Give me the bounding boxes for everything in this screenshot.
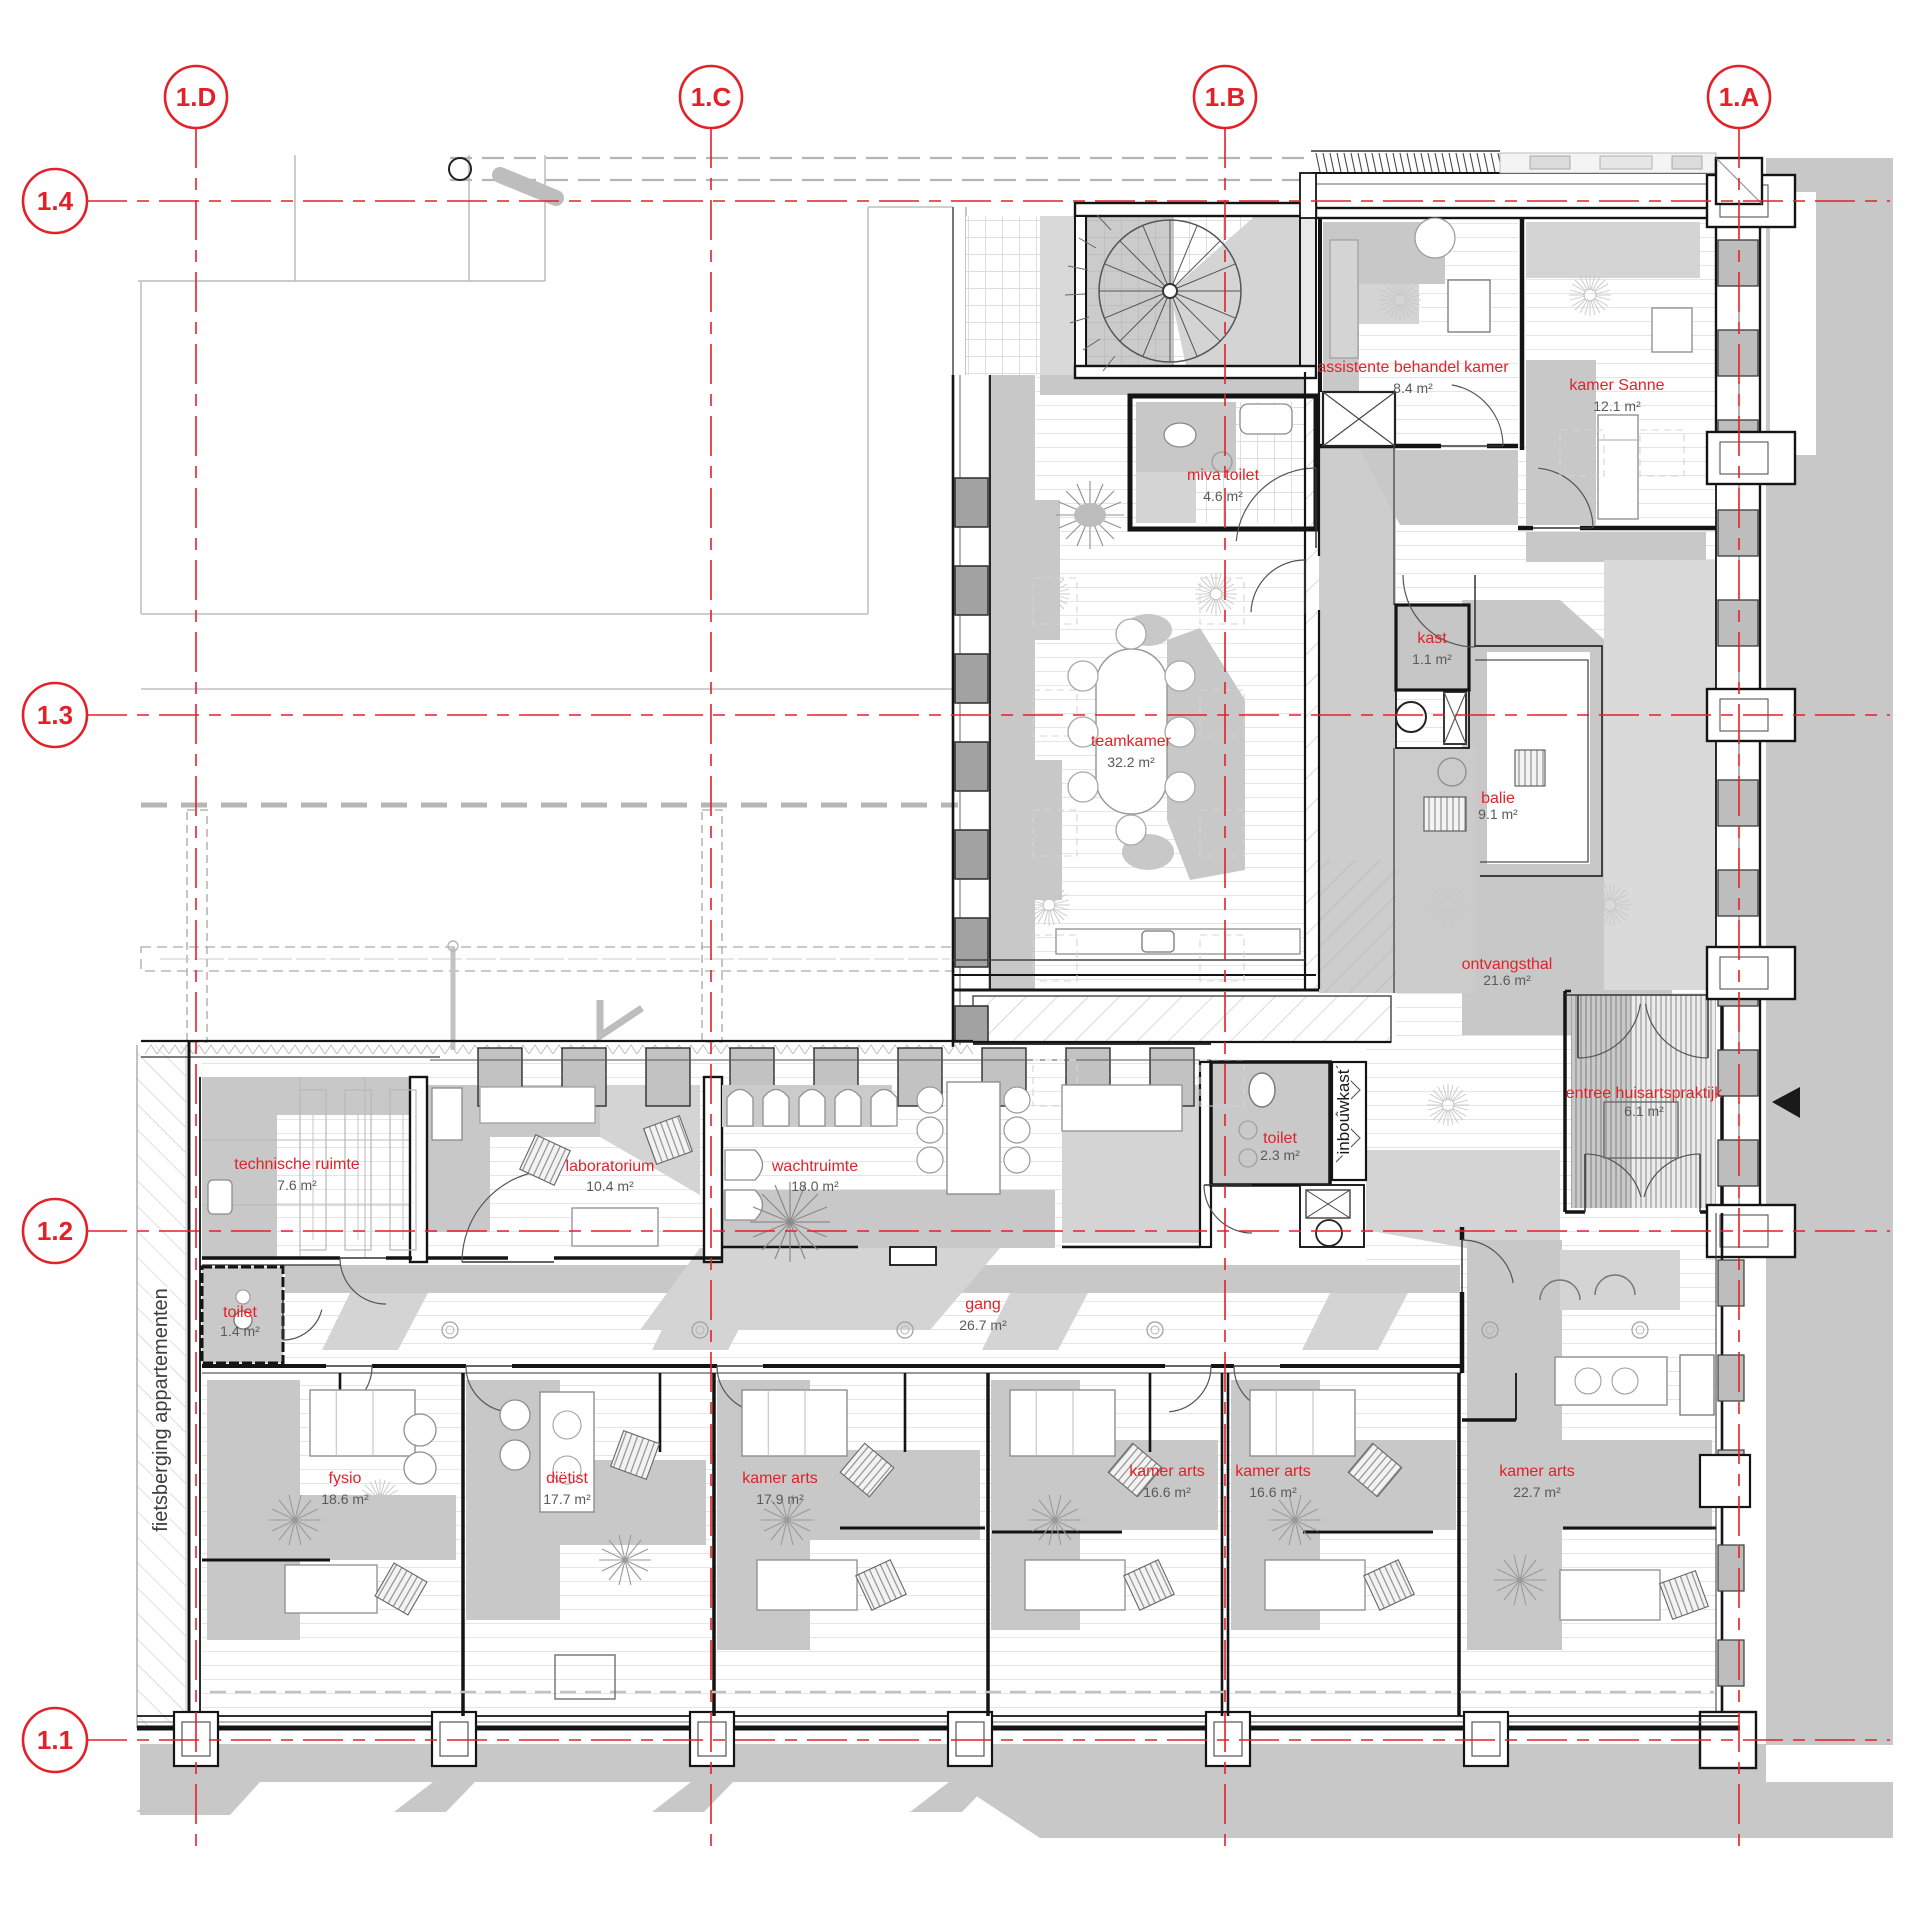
svg-text:16.6 m²: 16.6 m²	[1249, 1484, 1297, 1500]
svg-text:21.6 m²: 21.6 m²	[1483, 972, 1531, 988]
svg-text:kamer arts: kamer arts	[1499, 1463, 1575, 1480]
svg-text:1.B: 1.B	[1205, 82, 1245, 112]
svg-text:gang: gang	[965, 1296, 1001, 1313]
svg-text:fietsberging appartementen: fietsberging appartementen	[150, 1288, 172, 1532]
svg-text:2.3 m²: 2.3 m²	[1260, 1147, 1300, 1163]
svg-text:1.4 m²: 1.4 m²	[220, 1323, 260, 1339]
svg-text:entree huisartspraktijk: entree huisartspraktijk	[1566, 1085, 1724, 1102]
svg-text:kast: kast	[1417, 630, 1447, 647]
svg-text:inbouwkast: inbouwkast	[1334, 1069, 1353, 1154]
svg-text:1.3: 1.3	[37, 700, 73, 730]
svg-text:1.D: 1.D	[176, 82, 216, 112]
svg-text:ontvangsthal: ontvangsthal	[1462, 956, 1553, 973]
svg-text:kamer arts: kamer arts	[1129, 1463, 1205, 1480]
svg-text:12.1 m²: 12.1 m²	[1593, 398, 1641, 414]
svg-text:10.4 m²: 10.4 m²	[586, 1178, 634, 1194]
svg-text:6.1 m²: 6.1 m²	[1624, 1103, 1664, 1119]
svg-text:assistente behandel kamer: assistente behandel kamer	[1317, 359, 1509, 376]
svg-text:kamer arts: kamer arts	[742, 1470, 818, 1487]
svg-text:laboratorium: laboratorium	[566, 1158, 655, 1175]
svg-text:1.2: 1.2	[37, 1216, 73, 1246]
svg-text:1.C: 1.C	[691, 82, 732, 112]
svg-text:1.4: 1.4	[37, 186, 74, 216]
svg-text:miva toilet: miva toilet	[1187, 467, 1260, 484]
svg-text:1.A: 1.A	[1719, 82, 1760, 112]
svg-text:fysio: fysio	[329, 1470, 362, 1487]
svg-text:toilet: toilet	[223, 1304, 257, 1321]
svg-text:1.1 m²: 1.1 m²	[1412, 651, 1452, 667]
svg-text:wachtruimte: wachtruimte	[771, 1158, 858, 1175]
svg-text:7.6 m²: 7.6 m²	[277, 1177, 317, 1193]
svg-text:kamer Sanne: kamer Sanne	[1569, 377, 1664, 394]
svg-text:teamkamer: teamkamer	[1091, 733, 1172, 750]
svg-text:26.7 m²: 26.7 m²	[959, 1317, 1007, 1333]
svg-text:9.1 m²: 9.1 m²	[1478, 806, 1518, 822]
svg-text:22.7 m²: 22.7 m²	[1513, 1484, 1561, 1500]
svg-text:diëtist: diëtist	[546, 1470, 588, 1487]
svg-text:toilet: toilet	[1263, 1130, 1297, 1147]
svg-text:technische ruimte: technische ruimte	[234, 1156, 359, 1173]
svg-text:18.6 m²: 18.6 m²	[321, 1491, 369, 1507]
svg-text:18.0 m²: 18.0 m²	[791, 1178, 839, 1194]
svg-text:17.9 m²: 17.9 m²	[756, 1491, 804, 1507]
svg-text:balie: balie	[1481, 790, 1515, 807]
svg-text:17.7 m²: 17.7 m²	[543, 1491, 591, 1507]
svg-text:4.6 m²: 4.6 m²	[1203, 488, 1243, 504]
svg-text:16.6 m²: 16.6 m²	[1143, 1484, 1191, 1500]
svg-text:8.4 m²: 8.4 m²	[1393, 380, 1433, 396]
svg-text:32.2 m²: 32.2 m²	[1107, 754, 1155, 770]
svg-text:kamer arts: kamer arts	[1235, 1463, 1311, 1480]
svg-text:1.1: 1.1	[37, 1725, 73, 1755]
